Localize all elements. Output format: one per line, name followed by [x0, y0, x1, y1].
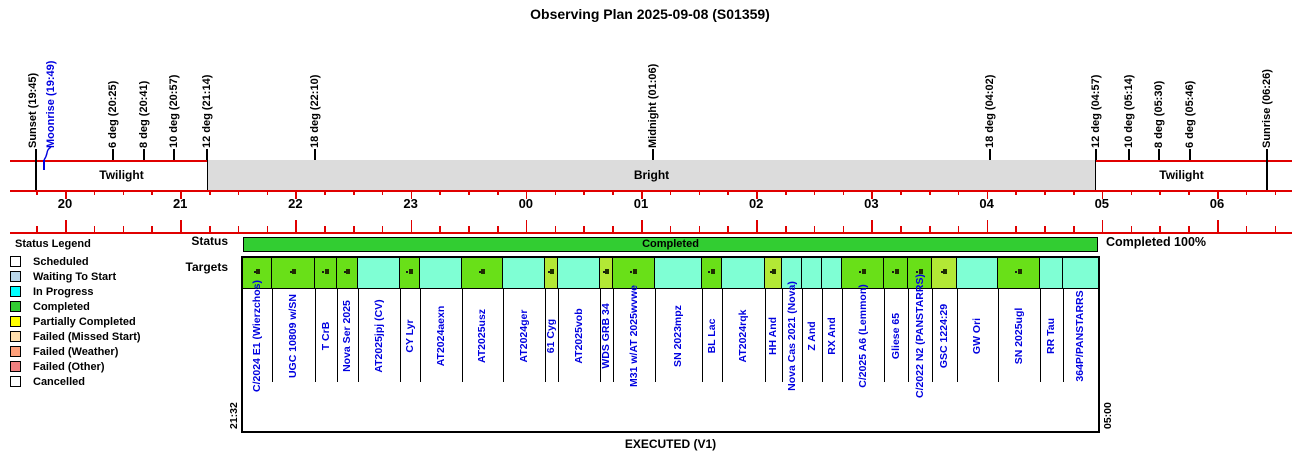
target-cell	[655, 258, 702, 288]
legend-label: In Progress	[33, 286, 94, 298]
time-tick	[1131, 191, 1133, 195]
time-tick	[123, 191, 125, 195]
ruler-tick	[1044, 226, 1046, 232]
target-column-divider	[558, 289, 559, 382]
target-cell	[957, 258, 998, 288]
sky-marker-label: Sunset (19:45)	[27, 73, 39, 148]
exposure-marker-icon	[548, 269, 555, 274]
ruler-tick	[497, 226, 499, 232]
target-name-label: AT2024aexn	[435, 306, 447, 367]
bright-label: Bright	[207, 167, 1096, 183]
target-name-label: BL Lac	[706, 319, 718, 354]
target-name-label: Gliese 65	[890, 313, 902, 359]
target-column-divider	[1063, 289, 1064, 382]
time-tick	[1044, 191, 1046, 195]
legend-swatch	[10, 256, 21, 267]
target-column-divider	[337, 289, 338, 382]
time-tick	[814, 191, 816, 195]
exposure-marker-icon	[290, 269, 297, 274]
exposure-marker-icon	[859, 269, 866, 274]
legend-swatch	[10, 286, 21, 297]
target-name-label: C/2024 E1 (Wierzchos)	[251, 280, 263, 392]
sky-marker-tick	[1158, 149, 1160, 160]
time-tick	[727, 191, 729, 195]
exposure-marker-part	[772, 269, 776, 274]
legend-label: Scheduled	[33, 256, 89, 268]
hour-label: 01	[621, 196, 661, 211]
start-time-label: 21:32	[228, 402, 240, 429]
ruler-tick	[843, 226, 845, 232]
ruler-tick	[756, 220, 758, 232]
exposure-marker-part	[711, 269, 715, 274]
target-column-divider	[420, 289, 421, 382]
target-cell	[1063, 258, 1098, 288]
time-tick	[900, 191, 902, 195]
time-tick	[699, 191, 701, 195]
sky-marker-label: Moonrise (19:49)	[45, 61, 57, 148]
time-tick	[670, 191, 672, 195]
ruler-tick	[727, 226, 729, 232]
ruler-tick	[555, 226, 557, 232]
exposure-marker-icon	[322, 269, 329, 274]
target-cell	[822, 258, 842, 288]
target-cell	[558, 258, 600, 288]
time-tick	[439, 191, 441, 195]
ruler-tick	[324, 226, 326, 232]
target-column-divider	[702, 289, 703, 382]
ruler-tick	[267, 226, 269, 232]
hour-label: 23	[391, 196, 431, 211]
exposure-marker-part	[409, 269, 413, 274]
target-column-divider	[315, 289, 316, 382]
ruler-tick	[583, 226, 585, 232]
sky-marker-tick	[112, 149, 114, 160]
hour-label: 05	[1082, 196, 1122, 211]
target-name-label: RR Tau	[1045, 318, 1057, 354]
target-name-label: Nova Ser 2025	[341, 300, 353, 372]
hour-label: 22	[275, 196, 315, 211]
target-name-label: RX And	[826, 317, 838, 355]
ruler-tick	[670, 226, 672, 232]
sky-marker-label: 12 deg (04:57)	[1090, 75, 1102, 148]
ruler-tick	[411, 220, 413, 232]
ruler-tick	[1073, 226, 1075, 232]
ruler-tick	[1102, 220, 1104, 232]
time-tick	[36, 191, 38, 195]
legend-label: Waiting To Start	[33, 271, 116, 283]
end-time-label: 05:00	[1102, 402, 1114, 429]
target-name-label: C/2025 A6 (Lemmon)	[857, 284, 869, 387]
target-column-divider	[957, 289, 958, 382]
hour-label: 03	[851, 196, 891, 211]
target-name-label: T CrB	[320, 322, 332, 351]
ruler-tick	[36, 226, 38, 232]
time-tick	[583, 191, 585, 195]
ruler-tick	[929, 226, 931, 232]
target-name-label: 61 Cyg	[545, 319, 557, 353]
target-column-divider	[358, 289, 359, 382]
sky-marker-tick	[314, 149, 316, 160]
exposure-marker-icon	[1015, 269, 1022, 274]
ruler-tick	[1217, 220, 1219, 232]
target-name-label: 364P/PANSTARRS	[1074, 290, 1086, 381]
ruler-tick	[958, 226, 960, 232]
time-tick	[94, 191, 96, 195]
target-column-divider	[613, 289, 614, 382]
target-column-divider	[1040, 289, 1041, 382]
exposure-marker-part	[1018, 269, 1022, 274]
target-column-divider	[503, 289, 504, 382]
legend-swatch	[10, 316, 21, 327]
page-title: Observing Plan 2025-09-08 (S01359)	[0, 6, 1300, 22]
sky-marker-tick	[1128, 149, 1130, 160]
exposure-marker-icon	[770, 269, 777, 274]
ruler-tick	[814, 226, 816, 232]
legend-swatch	[10, 271, 21, 282]
targets-row-label: Targets	[158, 260, 228, 274]
sky-marker-tick	[143, 149, 145, 160]
time-tick	[843, 191, 845, 195]
time-tick	[1275, 191, 1277, 195]
time-tick	[929, 191, 931, 195]
ruler-tick	[295, 220, 297, 232]
target-column-divider	[884, 289, 885, 382]
target-name-label: AT2025usz	[476, 309, 488, 363]
exposure-marker-part	[550, 269, 554, 274]
ruler-tick	[641, 220, 643, 232]
time-tick	[1188, 191, 1190, 195]
target-cell	[503, 258, 545, 288]
ruler-tick	[699, 226, 701, 232]
legend-title: Status Legend	[15, 238, 91, 250]
target-name-label: AT2025vob	[573, 308, 585, 363]
sky-marker-label: 8 deg (05:30)	[1153, 81, 1165, 148]
hour-label: 06	[1197, 196, 1237, 211]
target-column-divider	[782, 289, 783, 382]
exposure-marker-part	[325, 269, 329, 274]
target-cell	[722, 258, 765, 288]
status-bar: Completed	[243, 237, 1098, 252]
exposure-marker-part	[943, 269, 947, 274]
time-tick	[324, 191, 326, 195]
legend-label: Failed (Missed Start)	[33, 331, 141, 343]
sky-marker-tick	[652, 149, 654, 160]
target-name-label: C/2022 N2 (PANSTARRS)	[914, 274, 926, 398]
ruler-tick	[151, 226, 153, 232]
exposure-marker-icon	[708, 269, 715, 274]
legend-label: Cancelled	[33, 376, 85, 388]
ruler-tick	[785, 226, 787, 232]
target-column-divider	[822, 289, 823, 382]
exposure-marker-part	[862, 269, 866, 274]
hour-label: 04	[967, 196, 1007, 211]
time-tick	[238, 191, 240, 195]
moonrise-tick	[43, 160, 45, 170]
target-column-divider	[655, 289, 656, 382]
time-tick	[958, 191, 960, 195]
target-name-label: M31 w/AT 2025wvwe	[628, 285, 640, 387]
ruler-tick	[439, 226, 441, 232]
status-bar-label: Completed	[642, 238, 699, 250]
legend-label: Failed (Weather)	[33, 346, 118, 358]
ruler-tick	[209, 226, 211, 232]
target-cell	[1040, 258, 1063, 288]
ruler-tick	[65, 220, 67, 232]
sky-marker-tick	[173, 149, 175, 160]
exposure-marker-icon	[479, 269, 486, 274]
sky-marker-label: 10 deg (05:14)	[1123, 75, 1135, 148]
target-column-divider	[272, 289, 273, 382]
ruler-tick	[1246, 226, 1248, 232]
sky-marker-label: 18 deg (22:10)	[309, 75, 321, 148]
time-tick	[555, 191, 557, 195]
ruler-tick	[353, 226, 355, 232]
time-tick	[1073, 191, 1075, 195]
hour-label: 20	[45, 196, 85, 211]
legend-swatch	[10, 376, 21, 387]
time-tick	[1159, 191, 1161, 195]
time-tick	[468, 191, 470, 195]
ruler-tick	[1015, 226, 1017, 232]
time-tick	[785, 191, 787, 195]
target-name-label: SN 2023mpz	[672, 305, 684, 367]
exposure-marker-icon	[406, 269, 413, 274]
ruler-tick	[871, 220, 873, 232]
time-tick	[1246, 191, 1248, 195]
target-cell	[802, 258, 822, 288]
time-tick	[1015, 191, 1017, 195]
ruler-tick	[526, 220, 528, 232]
target-name-label: GSC 1224:29	[938, 304, 950, 368]
ruler-tick	[612, 226, 614, 232]
target-column-divider	[908, 289, 909, 382]
target-name-label: UGC 10809 w/SN	[287, 294, 299, 378]
ruler-tick	[1159, 226, 1161, 232]
sky-marker-label: Midnight (01:06)	[647, 64, 659, 148]
hour-label: 00	[506, 196, 546, 211]
exposure-marker-part	[895, 269, 899, 274]
ruler-tick	[94, 226, 96, 232]
sky-marker-tick	[206, 149, 208, 160]
ruler-tick	[987, 220, 989, 232]
ruler-tick	[900, 226, 902, 232]
legend-swatch	[10, 346, 21, 357]
time-tick	[382, 191, 384, 195]
time-tick	[612, 191, 614, 195]
exposure-marker-part	[605, 269, 609, 274]
exposure-marker-icon	[603, 269, 610, 274]
ruler-tick	[382, 226, 384, 232]
legend-label: Partially Completed	[33, 316, 136, 328]
target-name-label: CY Lyr	[404, 319, 416, 352]
target-row-divider	[243, 288, 1098, 289]
sky-marker-label: 12 deg (21:14)	[201, 75, 213, 148]
target-name-label: AT2025jpj (CV)	[373, 299, 385, 372]
sky-marker-tick	[1189, 149, 1191, 160]
chart-caption: EXECUTED (V1)	[241, 437, 1100, 451]
ruler-tick	[238, 226, 240, 232]
legend-swatch	[10, 301, 21, 312]
target-name-label: GW Ori	[971, 318, 983, 354]
legend-label: Failed (Other)	[33, 361, 105, 373]
exposure-marker-icon	[630, 269, 637, 274]
legend-swatch	[10, 361, 21, 372]
target-column-divider	[802, 289, 803, 382]
ruler-tick	[180, 220, 182, 232]
exposure-marker-icon	[344, 269, 351, 274]
target-name-label: SN 2025ugl	[1013, 308, 1025, 365]
hour-label: 21	[160, 196, 200, 211]
time-tick	[353, 191, 355, 195]
exposure-marker-icon	[254, 269, 261, 274]
time-tick	[151, 191, 153, 195]
twilight-label-left: Twilight	[36, 167, 207, 183]
ruler-tick	[1275, 226, 1277, 232]
target-cell	[358, 258, 400, 288]
target-name-label: WDS GRB 34	[600, 303, 612, 368]
exposure-marker-part	[292, 269, 296, 274]
status-row-label: Status	[158, 234, 228, 248]
legend-label: Completed	[33, 301, 90, 313]
exposure-marker-icon	[941, 269, 948, 274]
twilight-label-right: Twilight	[1096, 167, 1267, 183]
target-column-divider	[932, 289, 933, 382]
exposure-marker-part	[346, 269, 350, 274]
target-column-divider	[998, 289, 999, 382]
sky-marker-label: 18 deg (04:02)	[984, 75, 996, 148]
target-column-divider	[462, 289, 463, 382]
exposure-marker-part	[481, 269, 485, 274]
ruler-tick	[1131, 226, 1133, 232]
ruler-tick	[468, 226, 470, 232]
target-name-label: AT2024ger	[518, 310, 530, 363]
target-column-divider	[400, 289, 401, 382]
sky-marker-tick	[989, 149, 991, 160]
exposure-marker-icon	[892, 269, 899, 274]
sky-marker-label: 10 deg (20:57)	[168, 75, 180, 148]
ruler-tick	[123, 226, 125, 232]
exposure-marker-part	[633, 269, 637, 274]
target-name-label: Nova Cas 2021 (Nova)	[786, 281, 798, 391]
observing-plan-chart: Observing Plan 2025-09-08 (S01359) Twili…	[0, 0, 1300, 464]
time-tick	[209, 191, 211, 195]
hour-label: 02	[736, 196, 776, 211]
ruler-tick	[1188, 226, 1190, 232]
target-name-label: Z And	[806, 321, 818, 350]
target-column-divider	[722, 289, 723, 382]
time-tick	[497, 191, 499, 195]
completion-summary: Completed 100%	[1106, 235, 1206, 249]
sky-marker-label: 8 deg (20:41)	[138, 81, 150, 148]
band-bottom-line	[10, 190, 1292, 192]
target-name-label: HH And	[767, 317, 779, 355]
target-cell	[420, 258, 462, 288]
sky-marker-label: 6 deg (05:46)	[1184, 81, 1196, 148]
target-name-label: AT2024rqk	[737, 310, 749, 363]
time-tick	[267, 191, 269, 195]
sky-marker-label: Sunrise (06:26)	[1261, 69, 1273, 148]
sky-marker-label: 6 deg (20:25)	[107, 81, 119, 148]
exposure-marker-part	[256, 269, 260, 274]
target-column-divider	[842, 289, 843, 382]
sky-marker-tick	[1095, 149, 1097, 160]
target-column-divider	[765, 289, 766, 382]
legend-swatch	[10, 331, 21, 342]
